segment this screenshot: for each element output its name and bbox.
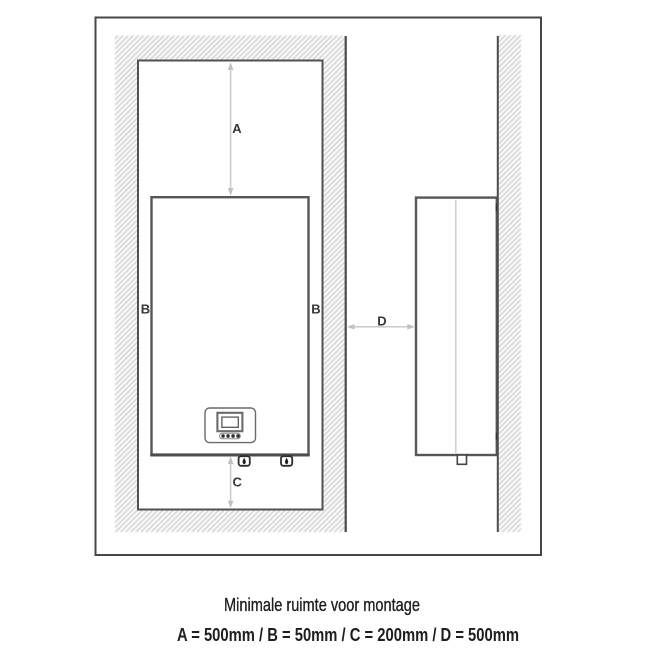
svg-text:A = 500mm / B = 50mm / C = 200: A = 500mm / B = 50mm / C = 200mm / D = 5… [177, 625, 519, 645]
svg-text:B: B [311, 301, 320, 316]
svg-text:B: B [141, 301, 150, 316]
svg-text:A: A [232, 121, 242, 136]
svg-text:D: D [377, 313, 386, 328]
svg-text:Minimale ruimte voor montage: Minimale ruimte voor montage [224, 595, 420, 615]
svg-text:C: C [233, 475, 243, 490]
